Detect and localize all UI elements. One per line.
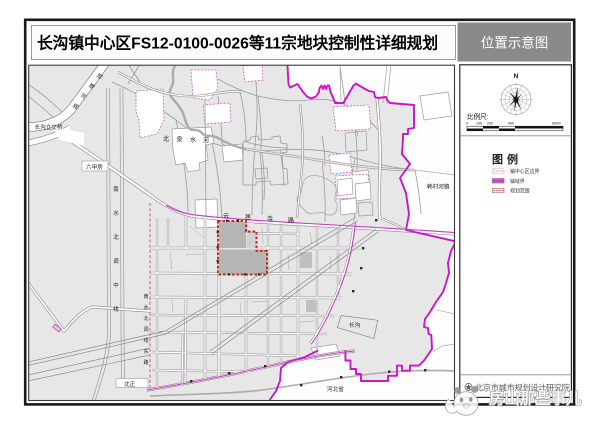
svg-text:规划范围: 规划范围 — [510, 188, 530, 195]
svg-text:北: 北 — [163, 135, 169, 143]
svg-text:寺: 寺 — [267, 215, 273, 223]
svg-text:河北省: 河北省 — [327, 385, 344, 393]
svg-text:镇中心区边界: 镇中心区边界 — [510, 168, 539, 175]
svg-text:线: 线 — [113, 305, 119, 313]
svg-text:600m: 600m — [552, 122, 561, 126]
svg-text:六甲房: 六甲房 — [86, 163, 103, 171]
svg-text:400: 400 — [508, 122, 514, 126]
svg-text:水: 水 — [113, 209, 119, 217]
svg-text:路: 路 — [288, 217, 294, 225]
svg-text:北正: 北正 — [124, 380, 136, 388]
svg-text:河: 河 — [203, 137, 209, 145]
svg-text:200: 200 — [487, 122, 493, 126]
svg-text:线: 线 — [143, 337, 148, 344]
svg-text:图例: 图例 — [492, 152, 522, 166]
svg-text:N: N — [514, 73, 519, 80]
svg-text:长沟镇中心区FS12-0100-0026等11宗地块控制性详: 长沟镇中心区FS12-0100-0026等11宗地块控制性详细规划 — [37, 34, 438, 53]
svg-text:调: 调 — [143, 326, 148, 333]
svg-text:位置示意图: 位置示意图 — [481, 35, 549, 51]
svg-text:100: 100 — [476, 122, 482, 126]
svg-text:水: 水 — [143, 304, 148, 311]
svg-text:南: 南 — [143, 293, 148, 300]
svg-text:水: 水 — [190, 136, 196, 144]
svg-text:中: 中 — [113, 281, 118, 289]
svg-text:北: 北 — [143, 315, 148, 322]
svg-text:南: 南 — [113, 185, 119, 193]
svg-text:云: 云 — [223, 213, 229, 220]
svg-text:韩村河镇: 韩村河镇 — [427, 183, 450, 191]
svg-text:长沟立交桥: 长沟立交桥 — [35, 123, 63, 131]
svg-text:居: 居 — [245, 214, 251, 221]
svg-text:房山那些事儿: 房山那些事儿 — [489, 389, 582, 408]
svg-text:调: 调 — [113, 257, 118, 265]
svg-text:长沟: 长沟 — [349, 321, 361, 329]
svg-text:泉: 泉 — [177, 136, 183, 144]
svg-text:路: 路 — [143, 359, 148, 366]
svg-text:比例尺:: 比例尺: — [467, 112, 489, 121]
svg-text:镇域界: 镇域界 — [510, 178, 525, 185]
svg-text:北: 北 — [113, 233, 119, 241]
svg-text:东: 东 — [143, 348, 148, 355]
svg-text:0: 0 — [466, 122, 468, 126]
